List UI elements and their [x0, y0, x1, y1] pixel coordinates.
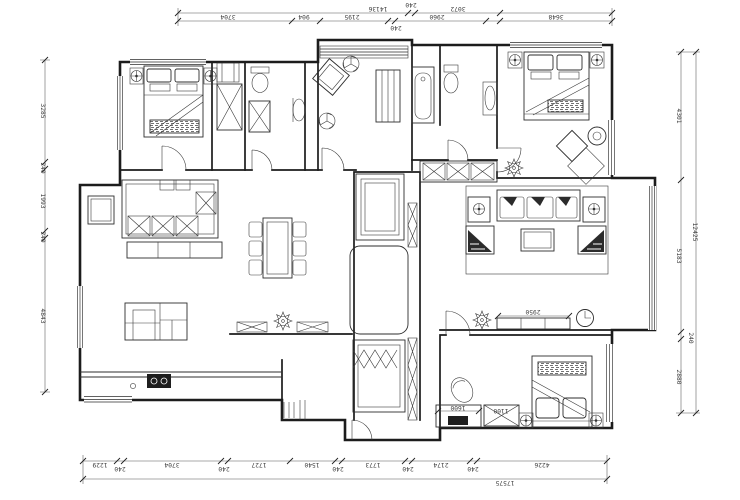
bedroom-study — [436, 356, 603, 428]
bathroom-small — [249, 67, 305, 132]
dim-label: 240 — [218, 465, 230, 472]
lamp-icon — [474, 204, 485, 215]
side-table — [588, 127, 606, 145]
exhaust-fan-icon — [343, 56, 359, 72]
ottoman — [568, 148, 605, 185]
hallway-storage — [420, 161, 497, 182]
dim-label: 2174 — [433, 461, 448, 468]
dimension-text-right: 4301 5183 240 2880 12425 — [675, 108, 698, 384]
bed-bench — [548, 100, 583, 112]
dim-label: 4301 — [675, 108, 682, 123]
dim-label: 2195 — [344, 13, 359, 20]
dim-label: 14136 — [368, 5, 387, 12]
pillow — [147, 69, 171, 82]
floor-plan-page: 14136 240 3072 3704 904 2195 240 2960 36… — [0, 0, 740, 500]
dim-label: 4226 — [534, 461, 549, 468]
dim-label: 3285 — [39, 103, 46, 118]
pillow — [536, 398, 559, 418]
plant-icon — [270, 308, 295, 333]
bathroom-master — [313, 56, 497, 129]
counter — [122, 180, 218, 238]
bed-bench — [150, 120, 199, 133]
dim-label: 1229 — [92, 461, 107, 468]
bed-bench — [538, 362, 586, 375]
dim-label: 240 — [39, 231, 46, 243]
dim-label: 1727 — [251, 461, 266, 468]
chair — [249, 222, 262, 237]
dim-label: 3704 — [164, 461, 179, 468]
elevator-core — [350, 174, 417, 420]
interior-labels: 2950 1600 1100 — [450, 308, 540, 414]
dim-label: 1993 — [39, 193, 46, 208]
floor-drain-icon — [319, 113, 335, 129]
dining-area — [249, 218, 306, 278]
chair — [293, 241, 306, 256]
dim-label: 240 — [390, 24, 402, 31]
dimension-text-bottom: 1229 240 3704 240 1727 1540 240 1773 240… — [92, 461, 549, 486]
chair — [249, 260, 262, 275]
chair — [249, 241, 262, 256]
kitchen — [80, 180, 282, 389]
table-group — [125, 303, 187, 340]
dim-label: 240 — [39, 162, 46, 174]
dim-label: 12425 — [691, 223, 698, 242]
bedroom-master — [501, 52, 606, 184]
hall-sideboard — [237, 308, 328, 333]
door-swings — [162, 140, 521, 440]
pillow — [557, 55, 582, 70]
dim-label: 240 — [405, 1, 417, 8]
toilet — [444, 73, 458, 93]
wardrobe-width-label: 1100 — [493, 407, 508, 414]
dim-label: 2960 — [429, 13, 444, 20]
lamp-icon — [521, 415, 532, 426]
chair — [293, 222, 306, 237]
sofa-cushions — [503, 197, 571, 206]
bedroom-secondary — [130, 63, 242, 137]
coffee-table — [521, 229, 554, 251]
plant-icon — [501, 155, 526, 180]
dim-label: 3648 — [548, 13, 563, 20]
side-cabinet — [88, 196, 114, 224]
dim-label: 3704 — [220, 13, 235, 20]
desk-width-label: 1600 — [450, 404, 465, 411]
plant-icon — [469, 307, 494, 332]
dining-table — [263, 218, 292, 278]
lamp-icon — [510, 55, 521, 66]
lamp-icon — [592, 55, 603, 66]
dim-label: 4843 — [39, 308, 46, 323]
desk-chair — [447, 374, 477, 407]
dim-label: 904 — [298, 13, 310, 20]
cabinet — [217, 63, 239, 82]
lamp-icon — [589, 204, 600, 215]
chair — [293, 260, 306, 275]
tv-cabinet — [497, 318, 570, 329]
family-room — [125, 303, 187, 340]
dim-label: 1540 — [304, 461, 319, 468]
toilet — [252, 74, 268, 93]
dim-label: 17575 — [495, 479, 514, 486]
washbasin — [293, 99, 305, 121]
dim-label: 240 — [402, 465, 414, 472]
dim-label: 240 — [467, 465, 479, 472]
sofa — [497, 190, 580, 221]
lamp-icon — [205, 71, 216, 82]
dim-label: 2880 — [675, 369, 682, 384]
dim-label: 240 — [687, 332, 694, 344]
washbasin — [485, 86, 495, 110]
dim-label: 240 — [114, 465, 126, 472]
dim-label: 240 — [332, 465, 344, 472]
lamp-icon — [131, 71, 142, 82]
pillow — [528, 55, 553, 70]
pillow — [175, 69, 199, 82]
dimension-text-top: 14136 240 3072 3704 904 2195 240 2960 36… — [220, 1, 563, 31]
lamp-icon — [591, 415, 602, 426]
dim-label: 1773 — [365, 461, 380, 468]
sink — [130, 383, 135, 388]
lounge-chair — [556, 130, 587, 161]
dim-label: 5183 — [675, 248, 682, 263]
tv-width-label: 2950 — [525, 308, 540, 315]
laptop — [448, 416, 468, 425]
floor-plan-canvas: 14136 240 3072 3704 904 2195 240 2960 36… — [0, 0, 740, 500]
dim-label: 3072 — [450, 5, 465, 12]
